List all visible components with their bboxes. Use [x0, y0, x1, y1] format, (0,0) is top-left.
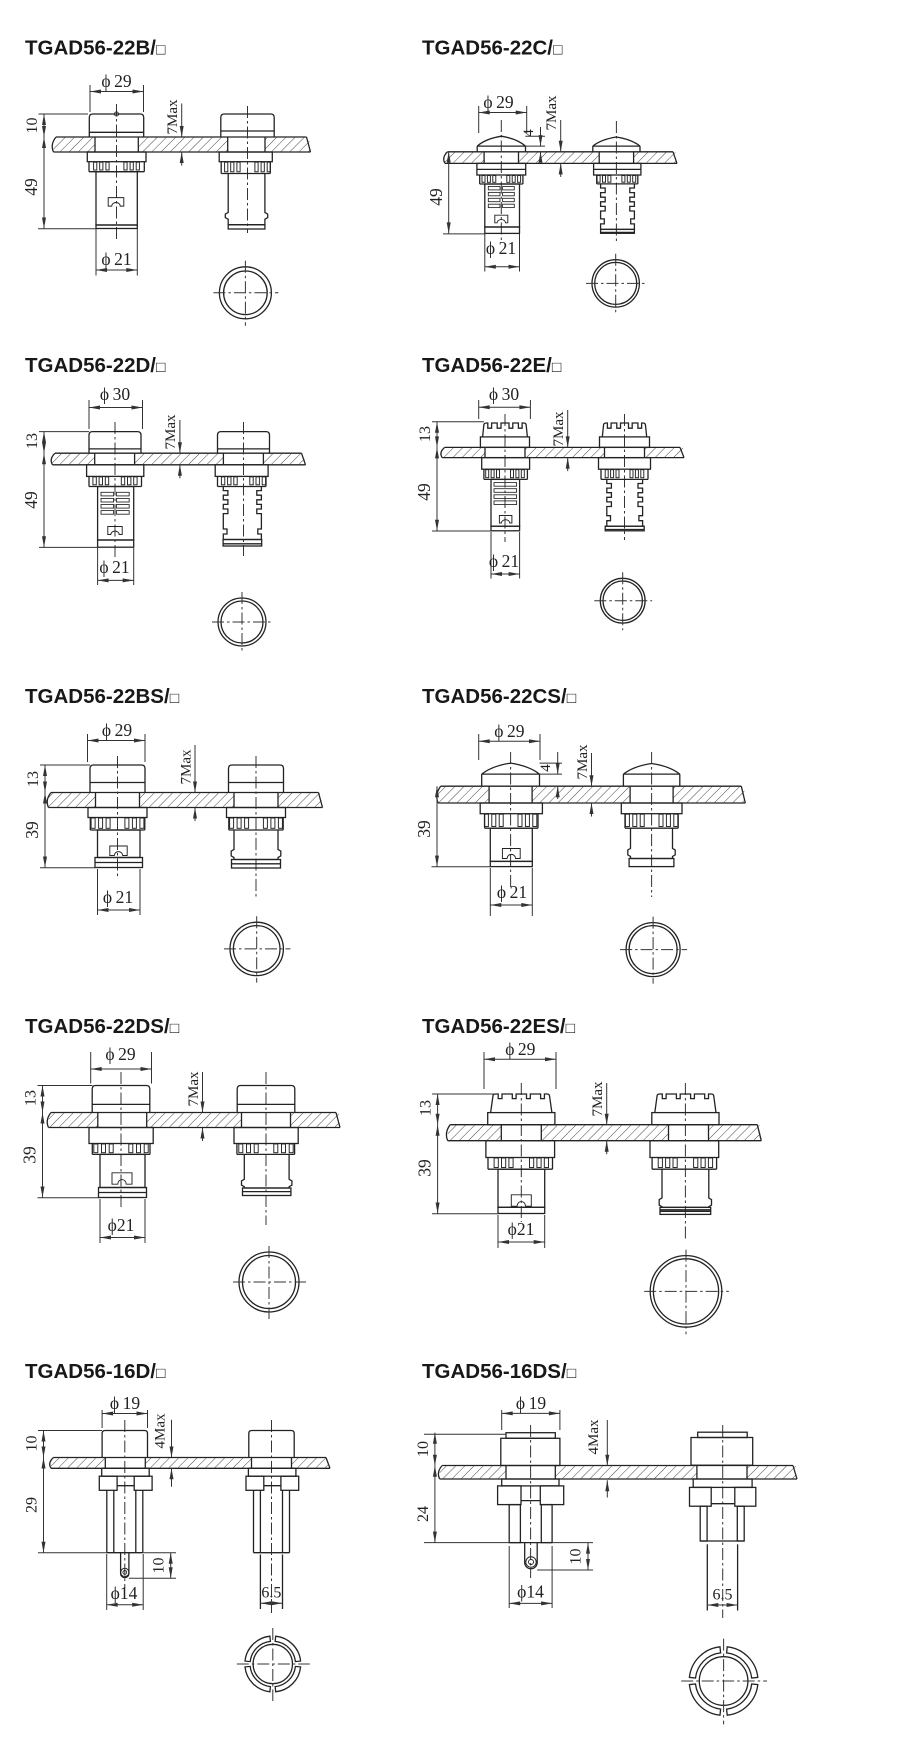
svg-text:ϕ 29: ϕ 29 — [494, 721, 524, 741]
svg-text:39: 39 — [20, 1146, 40, 1164]
svg-text:TGAD56-22ES/□: TGAD56-22ES/□ — [422, 1015, 576, 1038]
svg-text:TGAD56-16D/□: TGAD56-16D/□ — [25, 1360, 166, 1383]
svg-text:7Max: 7Max — [551, 411, 567, 446]
svg-text:ϕ 21: ϕ 21 — [99, 557, 129, 577]
svg-text:ϕ 29: ϕ 29 — [102, 720, 132, 740]
svg-text:ϕ 29: ϕ 29 — [101, 71, 131, 91]
svg-text:ϕ 21: ϕ 21 — [103, 887, 133, 907]
svg-text:ϕ 21: ϕ 21 — [497, 882, 527, 902]
svg-text:29: 29 — [24, 1497, 41, 1513]
svg-text:10: 10 — [151, 1558, 168, 1574]
svg-text:4: 4 — [538, 764, 554, 772]
svg-text:7Max: 7Max — [544, 95, 560, 130]
svg-text:13: 13 — [24, 433, 41, 449]
svg-text:TGAD56-22DS/□: TGAD56-22DS/□ — [25, 1015, 180, 1038]
svg-text:49: 49 — [426, 188, 446, 206]
svg-text:ϕ 21: ϕ 21 — [101, 249, 131, 269]
svg-text:ϕ21: ϕ21 — [508, 1219, 535, 1239]
svg-text:49: 49 — [21, 178, 41, 196]
svg-text:TGAD56-22BS/□: TGAD56-22BS/□ — [25, 685, 180, 708]
svg-text:ϕ 30: ϕ 30 — [489, 384, 519, 404]
svg-text:TGAD56-22C/□: TGAD56-22C/□ — [422, 37, 563, 60]
svg-text:TGAD56-22CS/□: TGAD56-22CS/□ — [422, 685, 577, 708]
svg-text:ϕ 21: ϕ 21 — [486, 238, 516, 258]
svg-text:4: 4 — [521, 129, 537, 137]
svg-text:ϕ 30: ϕ 30 — [100, 384, 130, 404]
svg-text:39: 39 — [22, 821, 42, 839]
svg-text:10: 10 — [24, 118, 41, 134]
svg-text:ϕ 29: ϕ 29 — [505, 1039, 535, 1059]
svg-text:ϕ 19: ϕ 19 — [516, 1393, 546, 1413]
svg-text:ϕ21: ϕ21 — [108, 1215, 135, 1235]
svg-text:13: 13 — [23, 1090, 40, 1106]
svg-text:7Max: 7Max — [178, 749, 194, 784]
svg-text:TGAD56-22D/□: TGAD56-22D/□ — [25, 354, 166, 377]
svg-text:10: 10 — [415, 1441, 432, 1457]
svg-text:ϕ 21: ϕ 21 — [489, 551, 519, 571]
svg-text:7Max: 7Max — [165, 99, 181, 134]
svg-text:ϕ 29: ϕ 29 — [105, 1044, 135, 1064]
svg-text:ϕ 19: ϕ 19 — [110, 1393, 140, 1413]
svg-text:10: 10 — [568, 1549, 585, 1565]
svg-text:TGAD56-22B/□: TGAD56-22B/□ — [25, 37, 166, 60]
svg-text:39: 39 — [414, 820, 434, 838]
svg-text:4Max: 4Max — [586, 1419, 602, 1454]
svg-text:7Max: 7Max — [163, 414, 179, 449]
svg-text:7Max: 7Max — [590, 1081, 606, 1116]
svg-text:ϕ14: ϕ14 — [111, 1583, 138, 1603]
svg-text:4Max: 4Max — [153, 1413, 169, 1448]
svg-text:6.5: 6.5 — [261, 1585, 281, 1602]
svg-text:TGAD56-16DS/□: TGAD56-16DS/□ — [422, 1360, 577, 1383]
svg-text:13: 13 — [25, 771, 42, 787]
svg-text:24: 24 — [415, 1506, 432, 1522]
svg-text:6.5: 6.5 — [713, 1587, 733, 1604]
svg-text:13: 13 — [417, 426, 434, 442]
svg-text:13: 13 — [418, 1100, 435, 1116]
svg-text:49: 49 — [414, 483, 434, 501]
svg-text:ϕ 29: ϕ 29 — [483, 92, 513, 112]
svg-text:7Max: 7Max — [186, 1071, 202, 1106]
svg-text:TGAD56-22E/□: TGAD56-22E/□ — [422, 354, 562, 377]
svg-text:49: 49 — [21, 491, 41, 509]
svg-text:ϕ14: ϕ14 — [517, 1582, 544, 1602]
svg-text:39: 39 — [415, 1159, 435, 1177]
svg-text:7Max: 7Max — [575, 744, 591, 779]
svg-text:10: 10 — [24, 1436, 41, 1452]
